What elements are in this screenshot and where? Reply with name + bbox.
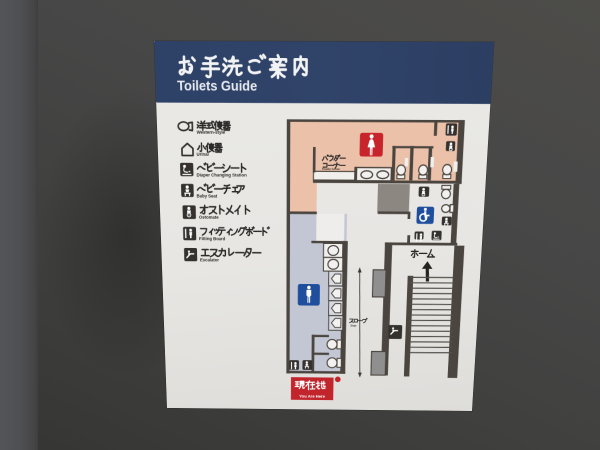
- svg-text:Powder Corner: Powder Corner: [322, 167, 341, 171]
- svg-text:Baby Seat: Baby Seat: [196, 193, 217, 199]
- svg-text:Urinal: Urinal: [196, 152, 208, 158]
- svg-text:You Are Here: You Are Here: [299, 394, 325, 399]
- svg-text:Ostomate: Ostomate: [199, 215, 219, 221]
- svg-text:Slope: Slope: [350, 325, 357, 328]
- svg-text:Toilets Guide: Toilets Guide: [177, 78, 258, 94]
- svg-text:Western-style: Western-style: [196, 130, 225, 136]
- svg-text:Escalator: Escalator: [200, 258, 219, 264]
- svg-text:Diaper Changing Station: Diaper Changing Station: [196, 172, 246, 178]
- svg-text:Fitting Board: Fitting Board: [199, 236, 225, 242]
